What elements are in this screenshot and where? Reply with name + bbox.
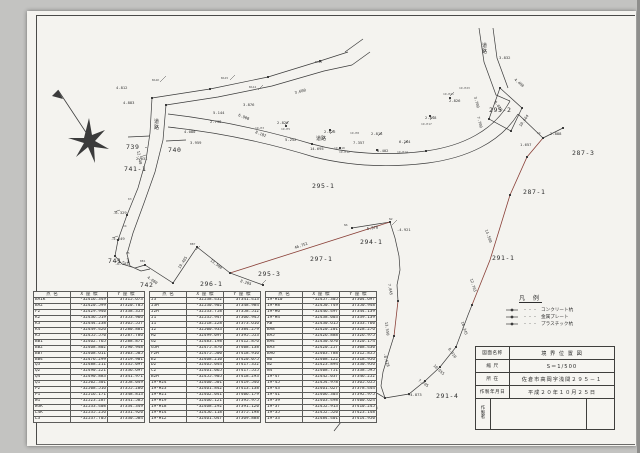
parcel-number: 740 bbox=[168, 146, 182, 154]
title-block-value: S＝1/500 bbox=[510, 360, 614, 372]
distance-label: 14.580 bbox=[484, 229, 494, 244]
distance-label: 4.488 bbox=[513, 77, 526, 89]
title-block-label: 縮 尺 bbox=[476, 360, 510, 372]
title-block-row: 縮 尺S＝1/500 bbox=[476, 360, 614, 373]
survey-point bbox=[488, 118, 490, 120]
road-label: 道 bbox=[482, 42, 487, 49]
parcel-number: 296-1 bbox=[200, 280, 223, 288]
survey-point bbox=[262, 284, 264, 286]
point-name: 19-H3 bbox=[255, 126, 264, 130]
parcel-number: 739 - bbox=[126, 143, 149, 151]
road-label: 道路 bbox=[316, 135, 326, 142]
plastic-pile-mark bbox=[505, 321, 521, 327]
table-row: 19-H21-32462.04137406.179 bbox=[150, 393, 261, 399]
point-name: BA14 bbox=[249, 85, 256, 89]
distance-label: 2.818 bbox=[425, 115, 437, 120]
legend-item: ・・・コンクリート杭 bbox=[505, 306, 573, 313]
table-row: 19-33-32484.40137414.950 bbox=[266, 416, 377, 422]
road-left bbox=[115, 98, 186, 271]
coordinate-table-3: 点 名X 座 標Y 座 標19-H10-32457.30537364.69719… bbox=[265, 291, 377, 423]
survey-point bbox=[542, 137, 544, 139]
distance-label: 2.738 bbox=[210, 119, 222, 124]
point-name: BB7 bbox=[190, 242, 196, 246]
survey-point bbox=[165, 104, 167, 106]
table-row: L3-32537.70537330.584 bbox=[34, 416, 145, 422]
distance-label: 1.657 bbox=[520, 142, 531, 147]
parcel-number: 287-1 bbox=[523, 188, 546, 196]
parcel-number: 295-1 bbox=[312, 182, 335, 190]
survey-point bbox=[425, 150, 427, 152]
survey-point bbox=[509, 194, 511, 196]
distance-label: -6.183 bbox=[115, 261, 129, 266]
survey-point bbox=[351, 227, 353, 229]
point-name: BA1K bbox=[152, 78, 159, 82]
survey-point bbox=[526, 156, 528, 158]
title-block-row: 図面名称境 界 位 置 図 bbox=[476, 347, 614, 360]
legend-title: 凡 例 bbox=[519, 293, 542, 303]
title-block-label: 所 在 bbox=[476, 373, 510, 385]
distance-label: 13.500 bbox=[209, 258, 224, 271]
survey-point bbox=[311, 143, 313, 145]
distance-label: 3.959 bbox=[190, 140, 202, 145]
title-block-maker-row: 作製者 bbox=[476, 399, 614, 429]
survey-point bbox=[172, 282, 174, 284]
distance-label: 2.818 bbox=[371, 131, 383, 136]
distance-label: 6.284 bbox=[399, 139, 411, 144]
point-name: A4 bbox=[537, 131, 541, 135]
survey-point bbox=[562, 127, 564, 129]
survey-point bbox=[196, 246, 198, 248]
scanned-page: 739 -740741-1741-1742296-1295-3297-1295-… bbox=[0, 0, 640, 453]
road-top-right bbox=[479, 28, 543, 138]
survey-point bbox=[229, 272, 231, 274]
distance-label: 3.700 bbox=[473, 96, 481, 109]
survey-point bbox=[209, 88, 211, 90]
point-name: BB1 bbox=[140, 259, 146, 263]
survey-point bbox=[455, 346, 457, 348]
distance-label: 5.978 bbox=[366, 224, 379, 231]
point-name: N2 bbox=[389, 217, 393, 221]
survey-point bbox=[151, 97, 153, 99]
point-name: BA12 bbox=[315, 60, 322, 64]
parcel-number: 295-3 bbox=[258, 270, 281, 278]
table-row: 19-H14-32456.11837375.198 bbox=[150, 410, 261, 416]
distance-label: 4.812 bbox=[116, 85, 127, 90]
distance-label: 3.832 bbox=[499, 55, 510, 60]
distance-label: 3.600 bbox=[294, 87, 307, 95]
distance-label: 7.357 bbox=[353, 140, 364, 145]
maker-side-cell bbox=[587, 399, 614, 429]
survey-point bbox=[521, 107, 523, 109]
parcel-number: 741-1 bbox=[124, 165, 147, 173]
distance-label: 6.908 bbox=[238, 112, 251, 121]
title-block-row: 所 在佐倉市高岡字浅間２９５－１ bbox=[476, 373, 614, 386]
distance-label: 4.883 bbox=[123, 100, 134, 105]
title-block: 図面名称境 界 位 置 図縮 尺S＝1/500所 在佐倉市高岡字浅間２９５－１作… bbox=[475, 346, 615, 430]
concrete-pile-mark bbox=[505, 307, 521, 313]
coordinate-table-1: 点 名X 座 標Y 座 標BA1K-32416.34937315.673BA2-… bbox=[33, 291, 145, 423]
parcel-number: 291-4 bbox=[436, 392, 459, 400]
distance-label: 13.550 bbox=[384, 322, 391, 337]
distance-label: 5.144 bbox=[213, 110, 225, 115]
distance-label: 2.826 bbox=[277, 120, 289, 125]
parcel-number: 291-1 bbox=[492, 254, 515, 262]
north-arrow-icon bbox=[52, 90, 109, 163]
distance-label: 7.700 bbox=[476, 116, 484, 129]
distance-label: -6.329 bbox=[113, 210, 127, 215]
table-row: 19-H23-32461.84237413.138 bbox=[150, 387, 261, 393]
legend: 凡 例 ・・・コンクリート杭・・・金属プレート・・・プラスチック杭 bbox=[505, 285, 573, 327]
table-row: 19-H18-32468.29237391.120 bbox=[150, 405, 261, 411]
survey-point bbox=[393, 335, 395, 337]
distance-label: -4.921 bbox=[397, 227, 411, 232]
legend-item-label: 金属プレート bbox=[541, 314, 569, 320]
point-name: 19-H21 bbox=[443, 92, 454, 96]
legend-item-label: コンクリート杭 bbox=[541, 307, 573, 313]
road-upper-diagonal bbox=[152, 39, 370, 105]
title-block-value: 境 界 位 置 図 bbox=[510, 347, 614, 359]
maker-label: 作製者 bbox=[476, 399, 491, 429]
metal-plate-mark bbox=[505, 314, 521, 320]
title-block-value: 平成２０年１０月２５日 bbox=[510, 386, 614, 398]
point-name: 19-H14 bbox=[397, 150, 408, 154]
point-name: N6 bbox=[344, 223, 348, 227]
title-block-row: 作製年月日平成２０年１０月２５日 bbox=[476, 386, 614, 399]
road-label: 道 bbox=[154, 118, 159, 125]
survey-point bbox=[510, 130, 512, 132]
distance-label: 2.826 bbox=[449, 98, 461, 103]
table-row: 19-H10-32457.30537364.697 bbox=[266, 298, 377, 304]
survey-point bbox=[144, 264, 146, 266]
table-row: 19-H12-32461.64737369.888 bbox=[150, 416, 261, 422]
parcel-number: 287-3 bbox=[572, 149, 595, 157]
road-label: 路 bbox=[154, 124, 159, 131]
parcel-number: 297-1 bbox=[310, 255, 333, 263]
title-block-value: 佐倉市高岡字浅間２９５－１ bbox=[510, 373, 614, 385]
point-name: 19-H12 bbox=[339, 150, 350, 154]
survey-point bbox=[389, 221, 391, 223]
point-name: K3 bbox=[128, 197, 132, 201]
distance-label: -8.528 bbox=[382, 353, 391, 368]
point-name: 19-H8 bbox=[350, 131, 359, 135]
survey-point bbox=[397, 300, 399, 302]
distance-label: 2.826 bbox=[324, 129, 336, 134]
parcel-number: 294-1 bbox=[360, 238, 383, 246]
point-name: 19-H17 bbox=[421, 122, 432, 126]
survey-point bbox=[384, 397, 386, 399]
survey-point bbox=[499, 87, 501, 89]
point-name: K5 bbox=[126, 251, 130, 255]
point-name: BA15 bbox=[221, 76, 228, 80]
distance-label: -5.649 bbox=[111, 236, 125, 241]
title-block-label: 図面名称 bbox=[476, 347, 510, 359]
leader-ticks bbox=[112, 75, 549, 284]
distance-label: 4.080 bbox=[184, 129, 196, 134]
table-row: 19-H24-32460.50137419.546 bbox=[150, 381, 261, 387]
distance-label: 8.182 bbox=[255, 129, 267, 138]
survey-point bbox=[267, 76, 269, 78]
distance-label: 8.205 bbox=[240, 278, 252, 286]
distance-label: 10.655 bbox=[432, 363, 445, 376]
distance-label: -4.873 bbox=[408, 392, 422, 397]
coordinate-table-2: 点 名X 座 標Y 座 標J3-32538.43237341.413J3H-32… bbox=[149, 291, 261, 423]
road-label: 路 bbox=[482, 48, 487, 55]
point-name: 19-H23 bbox=[459, 86, 470, 90]
table-row: 19-H19-32466.12137395.975 bbox=[150, 399, 261, 405]
legend-item: ・・・金属プレート bbox=[505, 313, 573, 320]
distance-label: 7.705 bbox=[417, 378, 429, 388]
legend-item-label: プラスチック杭 bbox=[541, 321, 573, 327]
title-block-label: 作製年月日 bbox=[476, 386, 510, 398]
distance-label: 14.695 bbox=[310, 146, 324, 151]
distance-label: 7.845 bbox=[387, 283, 394, 295]
point-name: K4 bbox=[123, 224, 127, 228]
distance-label: 12.703 bbox=[469, 278, 478, 293]
distance-label: 3.876 bbox=[243, 102, 255, 107]
maker-value-cell bbox=[491, 399, 587, 429]
distance-label: 8.402 bbox=[377, 148, 388, 153]
survey-point bbox=[471, 304, 473, 306]
legend-item: ・・・プラスチック杭 bbox=[505, 320, 573, 327]
distance-label: 5.252 bbox=[285, 137, 296, 142]
distance-label: 8.310 bbox=[447, 347, 458, 360]
distance-label: 2.888 bbox=[550, 131, 562, 136]
point-name: 19-H5 bbox=[281, 127, 290, 131]
